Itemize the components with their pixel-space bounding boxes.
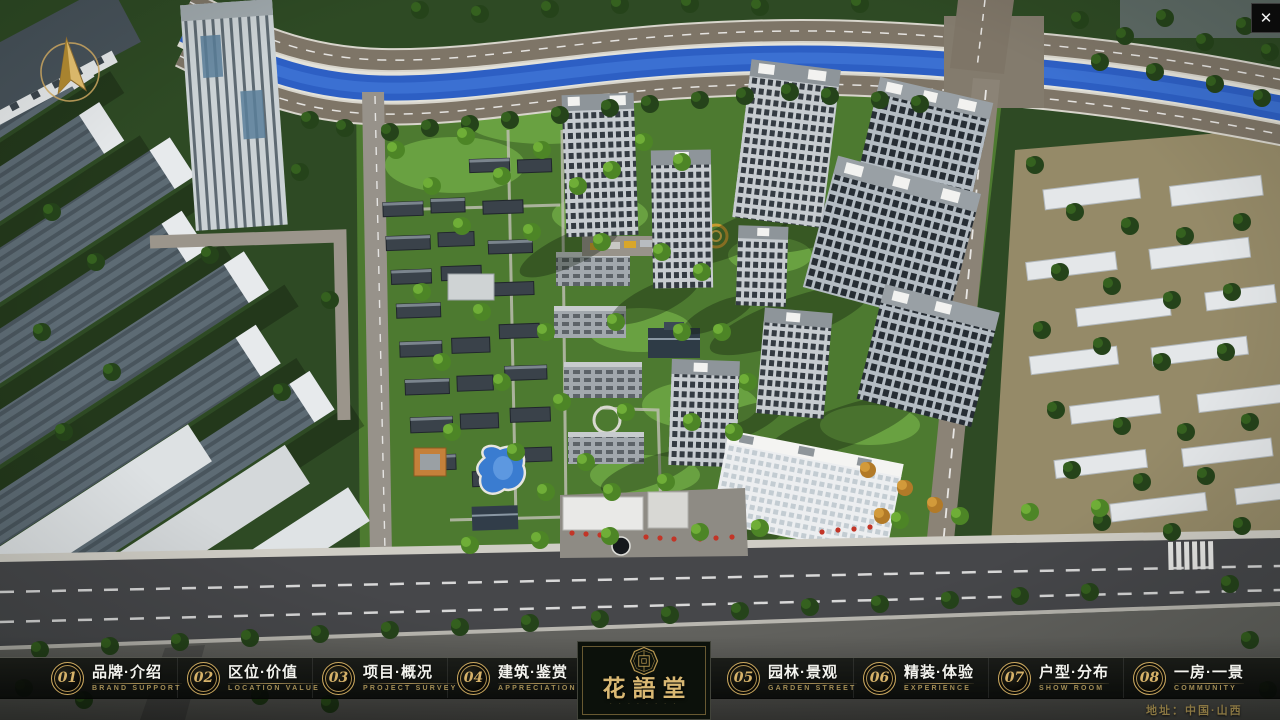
- address-label: 地址：中国·山西: [1146, 702, 1243, 718]
- nav-label-zh: 项目·概况: [363, 665, 457, 681]
- nav-item-interior[interactable]: 06 精装·体验 EXPERIENCE: [853, 658, 988, 698]
- item-number-badge: 04: [457, 662, 490, 695]
- nav-item-brand[interactable]: 01 品牌·介绍 BRAND SUPPORT: [42, 658, 177, 698]
- nav-label-zh: 建筑·鉴赏: [498, 665, 577, 681]
- vignette: [0, 0, 1280, 720]
- nav-item-floorplans[interactable]: 07 户型·分布 SHOW ROOM: [988, 658, 1123, 698]
- nav-label-zh: 户型·分布: [1039, 665, 1109, 681]
- nav-item-garden[interactable]: 05 园林·景观 GARDEN STREET: [718, 658, 853, 698]
- nav-label-en: PROJECT SURVEY: [363, 685, 457, 692]
- gold-divider: [363, 683, 457, 684]
- nav-label-zh: 精装·体验: [904, 665, 974, 681]
- item-number-badge: 08: [1133, 662, 1166, 695]
- project-tagline: · · · · · · · ·: [610, 701, 678, 707]
- nav-label-en: COMMUNITY: [1174, 685, 1244, 692]
- bottom-nav-right: 05 园林·景观 GARDEN STREET 06 精装·体验 EXPERIEN…: [711, 657, 1280, 699]
- item-number-badge: 07: [998, 662, 1031, 695]
- gold-divider: [768, 683, 857, 684]
- item-number-badge: 06: [863, 662, 896, 695]
- nav-item-views[interactable]: 08 一房·一景 COMMUNITY: [1123, 658, 1258, 698]
- project-logo-panel[interactable]: 花語堂 · · · · · · · ·: [577, 641, 711, 720]
- nav-label-en: BRAND SUPPORT: [92, 685, 182, 692]
- nav-label-zh: 品牌·介绍: [92, 665, 182, 681]
- item-number-badge: 02: [187, 662, 220, 695]
- gold-divider: [228, 683, 320, 684]
- seal-emblem-icon: [629, 646, 659, 676]
- item-number-badge: 03: [322, 662, 355, 695]
- nav-item-location[interactable]: 02 区位·价值 LOCATION VALUE: [177, 658, 312, 698]
- nav-label-en: GARDEN STREET: [768, 685, 857, 692]
- item-number-badge: 05: [727, 662, 760, 695]
- gold-divider: [1039, 683, 1109, 684]
- gold-divider: [92, 683, 182, 684]
- nav-label-en: EXPERIENCE: [904, 685, 974, 692]
- nav-label-zh: 区位·价值: [228, 665, 320, 681]
- nav-label-zh: 一房·一景: [1174, 665, 1244, 681]
- compass-north-indicator: [34, 30, 106, 110]
- nav-label-zh: 园林·景观: [768, 665, 857, 681]
- close-icon: ✕: [1260, 9, 1273, 27]
- nav-label-en: APPRECIATION: [498, 685, 577, 692]
- gold-divider: [498, 683, 577, 684]
- masterplan-render: [0, 0, 1280, 720]
- gold-divider: [904, 683, 974, 684]
- item-number-badge: 01: [51, 662, 84, 695]
- gold-divider: [1174, 683, 1244, 684]
- close-button[interactable]: ✕: [1251, 3, 1280, 33]
- nav-label-en: LOCATION VALUE: [228, 685, 320, 692]
- sales-presentation-window: ✕ 01 品牌·介绍 BRAND SUPPORT 02 区位·价值 LOCATI…: [0, 0, 1280, 720]
- nav-item-architecture[interactable]: 04 建筑·鉴赏 APPRECIATION: [447, 658, 577, 698]
- nav-label-en: SHOW ROOM: [1039, 685, 1109, 692]
- project-title: 花語堂: [596, 677, 693, 701]
- bottom-nav-left: 01 品牌·介绍 BRAND SUPPORT 02 区位·价值 LOCATION…: [0, 657, 577, 699]
- nav-item-project[interactable]: 03 项目·概况 PROJECT SURVEY: [312, 658, 447, 698]
